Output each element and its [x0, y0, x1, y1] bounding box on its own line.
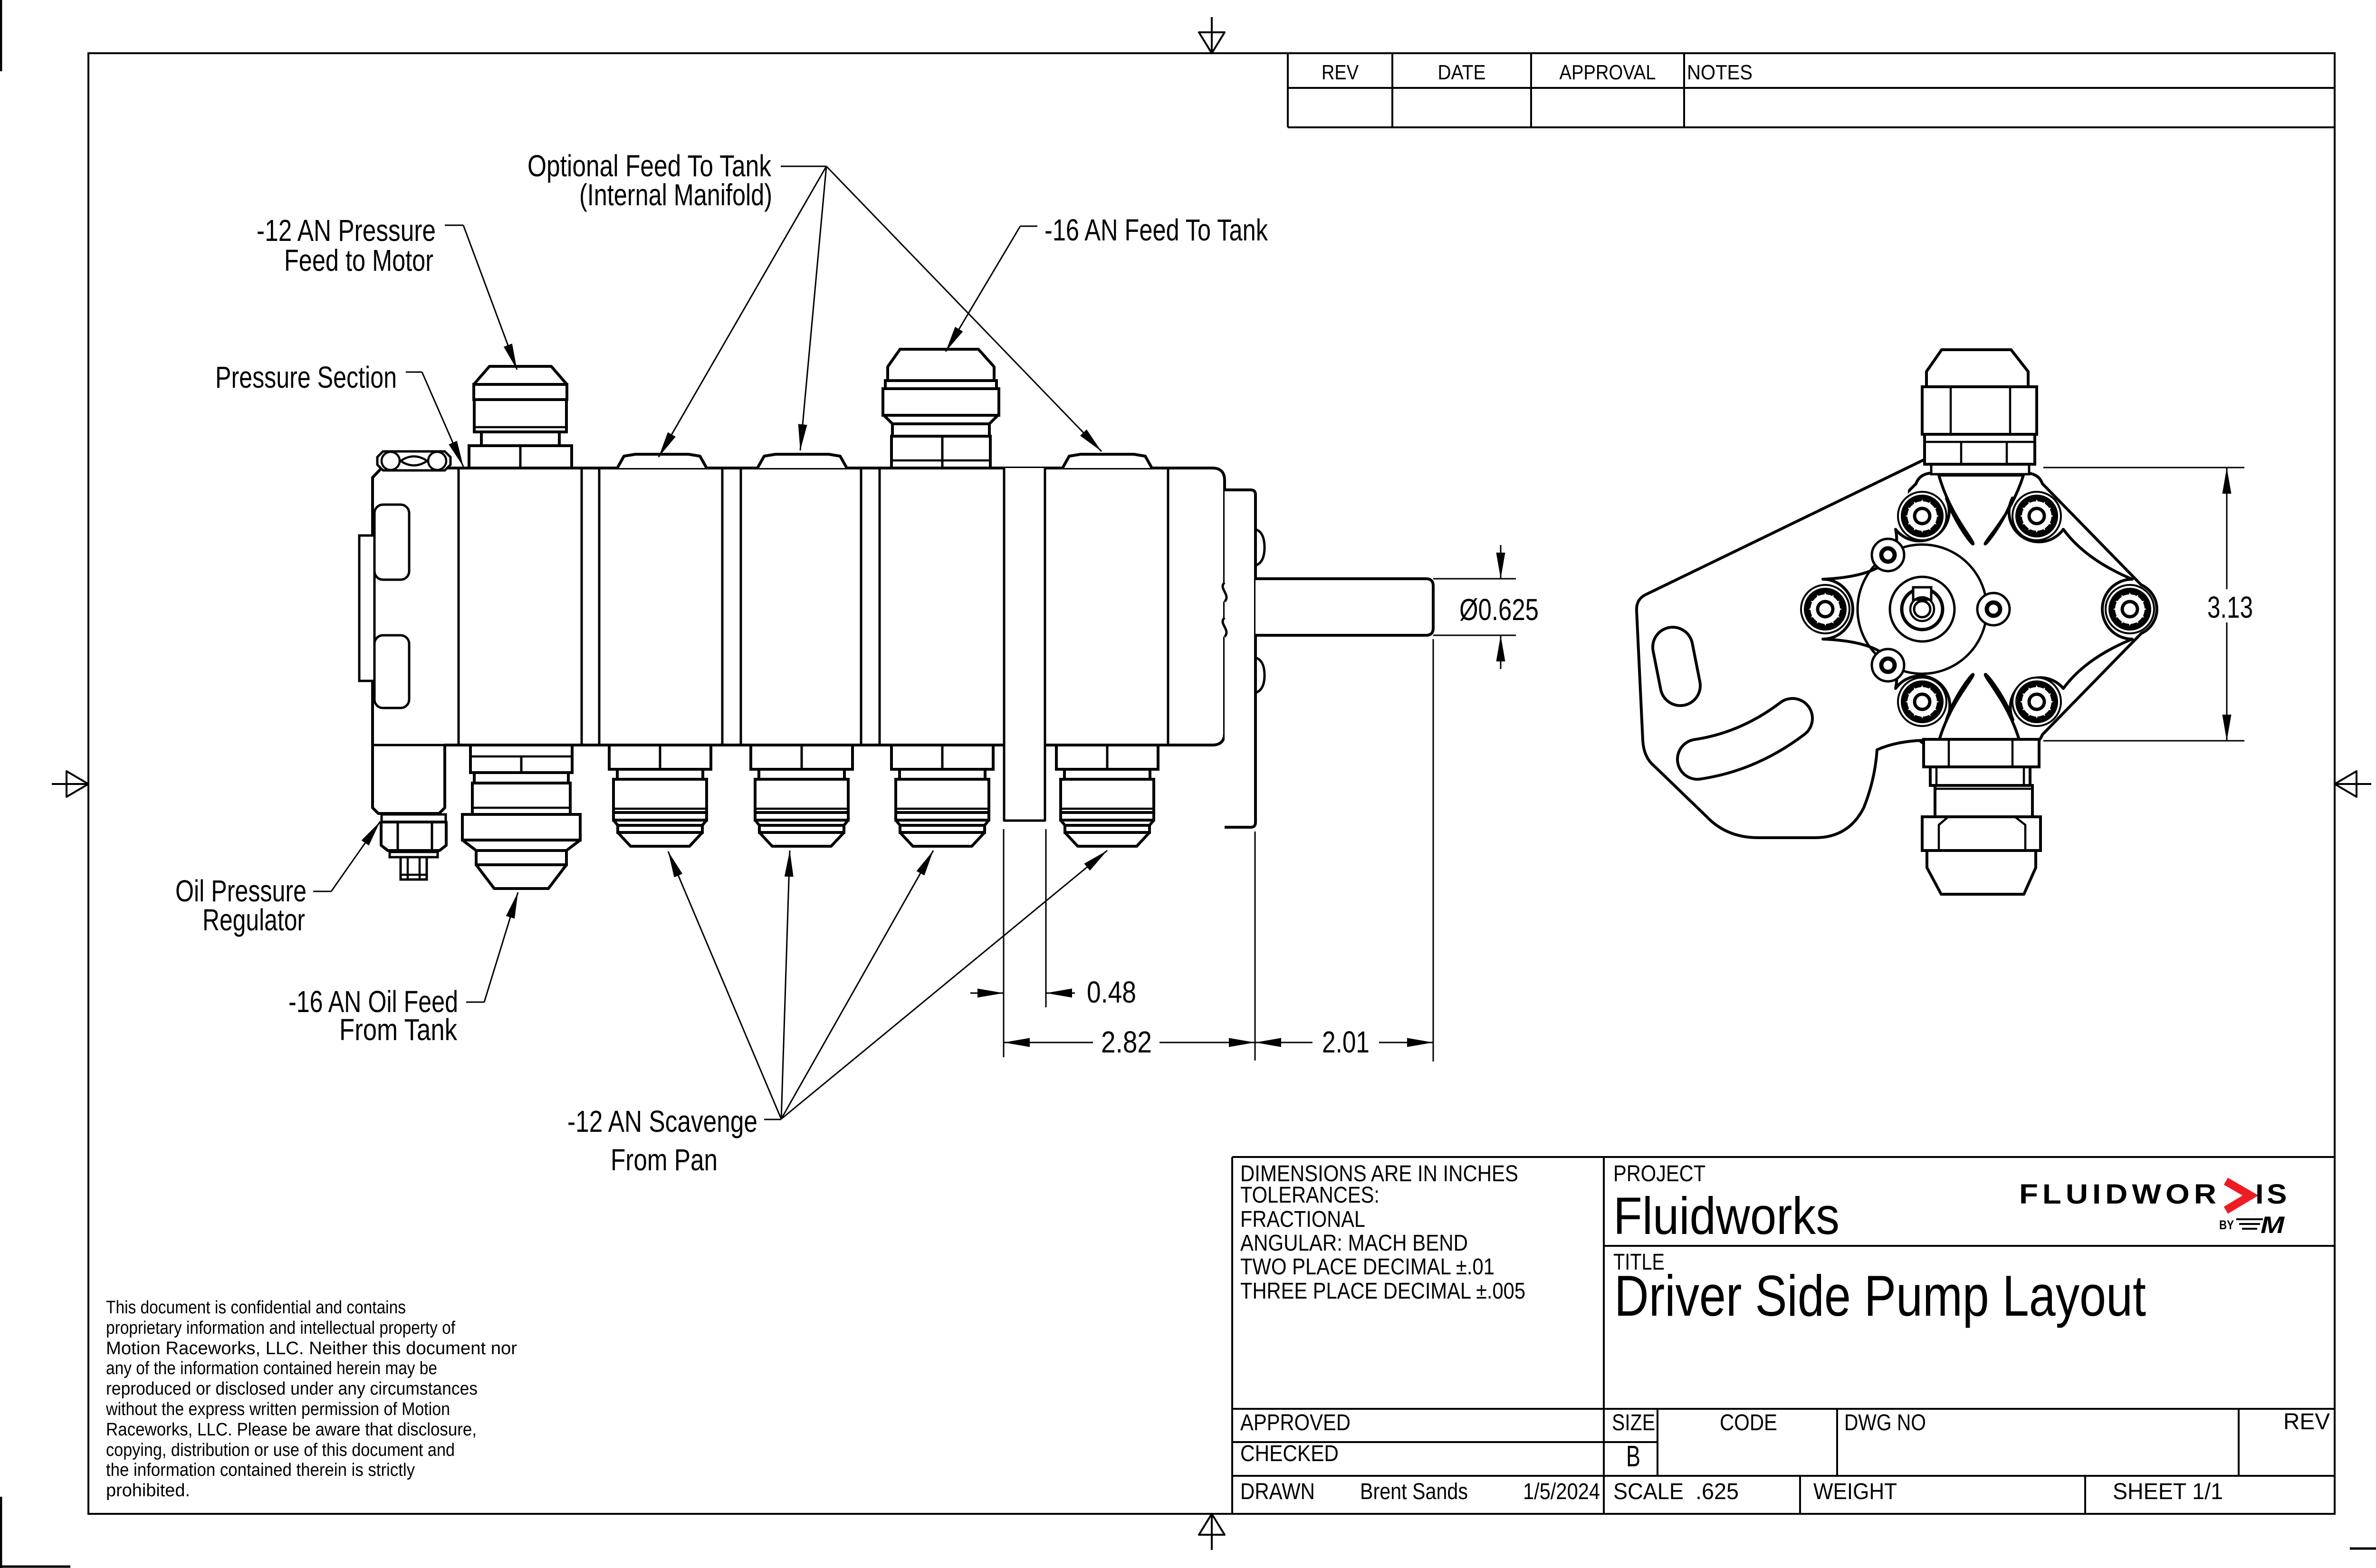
svg-text:Feed to Motor: Feed to Motor: [284, 243, 433, 277]
svg-text:the information contained ther: the information contained therein is str…: [106, 1460, 415, 1480]
svg-text:CHECKED: CHECKED: [1240, 1441, 1339, 1466]
svg-text:3.13: 3.13: [2207, 590, 2253, 624]
svg-text:SHEET 1/1: SHEET 1/1: [2113, 1479, 2223, 1504]
svg-text:-16 AN Feed To Tank: -16 AN Feed To Tank: [1044, 213, 1268, 247]
svg-text:REV: REV: [1322, 61, 1359, 84]
svg-text:copying, distribution or use o: copying, distribution or use of this doc…: [106, 1440, 455, 1460]
svg-text:reproduced or disclosed under: reproduced or disclosed under any circum…: [106, 1379, 478, 1399]
svg-text:0.48: 0.48: [1087, 975, 1136, 1009]
svg-text:REV: REV: [2283, 1409, 2330, 1434]
svg-text:2.82: 2.82: [1101, 1025, 1152, 1059]
svg-text:DWG NO: DWG NO: [1844, 1410, 1926, 1435]
svg-text:Raceworks, LLC. Please be awar: Raceworks, LLC. Please be aware that dis…: [106, 1420, 477, 1440]
svg-text:Pressure Section: Pressure Section: [215, 360, 397, 394]
svg-text:Ø0.625: Ø0.625: [1459, 593, 1539, 627]
svg-text:B: B: [1626, 1440, 1640, 1473]
svg-text:FRACTIONAL: FRACTIONAL: [1240, 1207, 1365, 1232]
svg-text:FLUIDWOR: FLUIDWOR: [2019, 1179, 2221, 1210]
svg-text:APPROVED: APPROVED: [1240, 1410, 1351, 1435]
svg-text:(Internal Manifold): (Internal Manifold): [579, 178, 772, 212]
svg-text:TWO PLACE DECIMAL ±.01: TWO PLACE DECIMAL ±.01: [1240, 1254, 1495, 1280]
svg-text:NOTES: NOTES: [1687, 61, 1753, 84]
svg-text:From Tank: From Tank: [339, 1013, 458, 1047]
svg-text:SIZE: SIZE: [1612, 1410, 1655, 1435]
svg-text:SCALE: SCALE: [1613, 1479, 1684, 1504]
svg-text:.625: .625: [1696, 1479, 1739, 1504]
svg-text:WEIGHT: WEIGHT: [1813, 1479, 1897, 1504]
svg-text:BY: BY: [2219, 1218, 2234, 1232]
svg-text:PROJECT: PROJECT: [1613, 1161, 1705, 1186]
svg-text:THREE PLACE DECIMAL ±.005: THREE PLACE DECIMAL ±.005: [1240, 1279, 1525, 1304]
svg-text:-12 AN Pressure: -12 AN Pressure: [257, 213, 436, 248]
svg-text:without the express written pe: without the express written permission o…: [105, 1399, 450, 1419]
svg-text:Regulator: Regulator: [202, 903, 305, 937]
svg-text:2.01: 2.01: [1322, 1025, 1370, 1059]
svg-text:This document is confidential: This document is confidential and contai…: [106, 1298, 406, 1318]
svg-text:1/5/2024: 1/5/2024: [1523, 1479, 1600, 1504]
svg-text:any of the information contain: any of the information contained herein …: [106, 1358, 437, 1378]
svg-text:M: M: [2261, 1212, 2285, 1238]
svg-text:TOLERANCES:: TOLERANCES:: [1240, 1183, 1380, 1208]
svg-text:prohibited.: prohibited.: [106, 1481, 190, 1501]
svg-text:DATE: DATE: [1438, 61, 1486, 84]
svg-text:Motion Raceworks, LLC. Neither: Motion Raceworks, LLC. Neither this docu…: [106, 1339, 517, 1358]
svg-text:proprietary information and in: proprietary information and intellectual…: [106, 1318, 455, 1338]
svg-text:-12 AN Scavenge: -12 AN Scavenge: [567, 1104, 757, 1138]
svg-text:Fluidworks: Fluidworks: [1613, 1187, 1839, 1245]
svg-text:From Pan: From Pan: [611, 1143, 718, 1177]
svg-text:IS: IS: [2255, 1179, 2290, 1210]
svg-text:ANGULAR: MACH BEND: ANGULAR: MACH BEND: [1240, 1231, 1468, 1256]
svg-text:Brent Sands: Brent Sands: [1360, 1479, 1468, 1504]
svg-text:DRAWN: DRAWN: [1240, 1479, 1315, 1504]
svg-text:CODE: CODE: [1720, 1410, 1777, 1435]
svg-text:APPROVAL: APPROVAL: [1560, 61, 1656, 84]
svg-text:Driver Side Pump Layout: Driver Side Pump Layout: [1614, 1263, 2146, 1328]
